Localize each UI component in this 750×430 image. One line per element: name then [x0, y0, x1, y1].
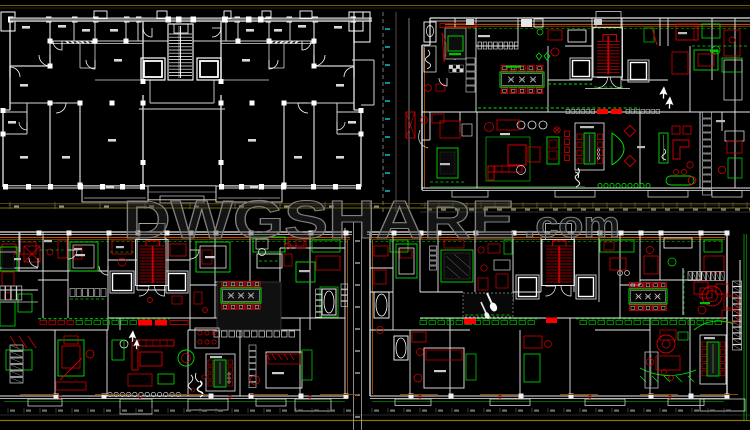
svg-text:.com: .com	[524, 204, 620, 245]
svg-text:DWGSHARE: DWGSHARE	[123, 190, 515, 250]
